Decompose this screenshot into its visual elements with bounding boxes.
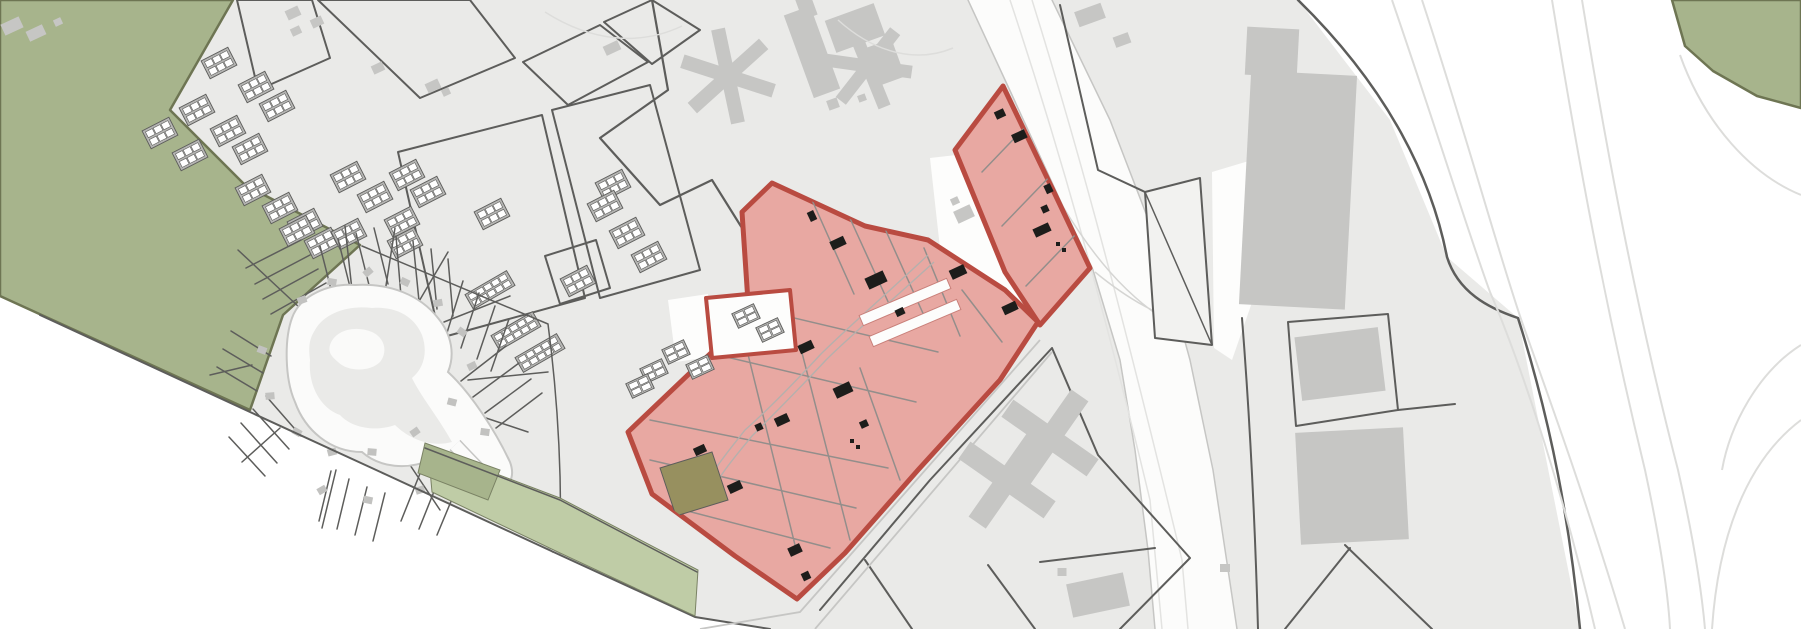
triangle-parcel	[1145, 178, 1212, 345]
site-plan-canvas	[0, 0, 1801, 629]
site-plan-map	[0, 0, 1801, 629]
garage-court-notch	[706, 290, 796, 358]
